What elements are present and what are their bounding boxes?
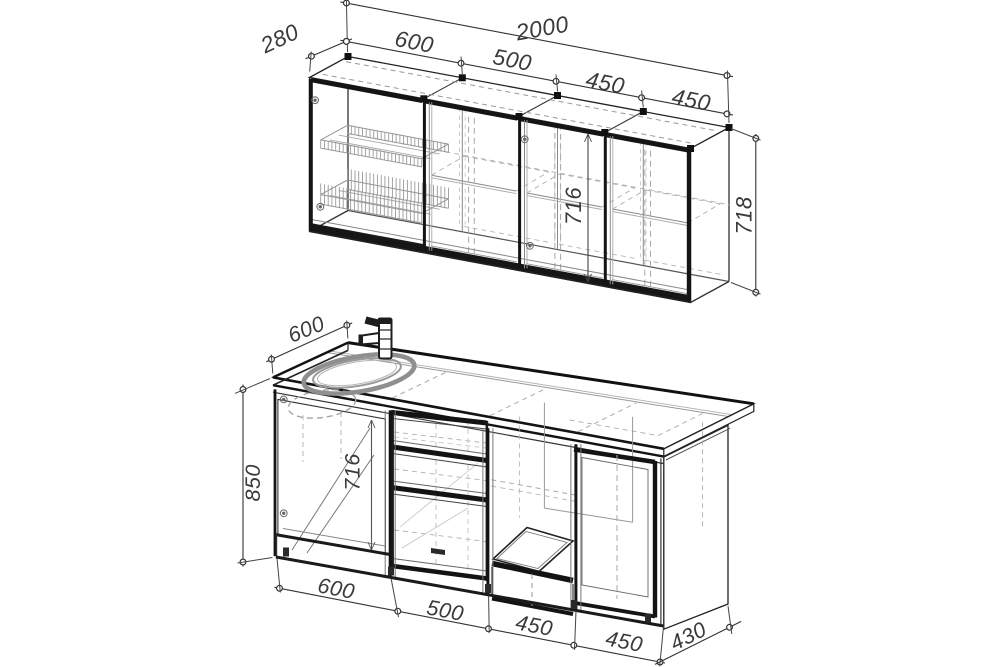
- svg-text:716: 716: [561, 187, 586, 225]
- svg-text:850: 850: [241, 464, 265, 501]
- svg-text:718: 718: [731, 196, 756, 234]
- svg-text:716: 716: [340, 453, 364, 490]
